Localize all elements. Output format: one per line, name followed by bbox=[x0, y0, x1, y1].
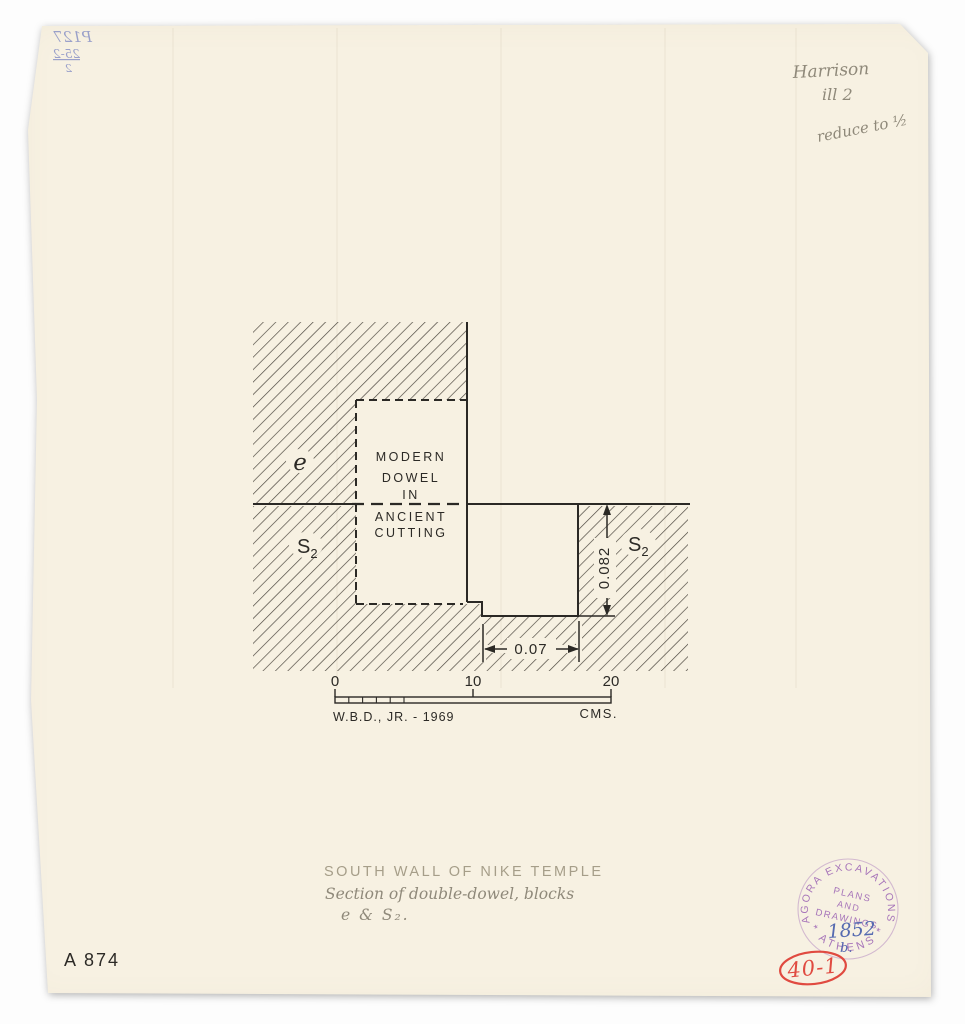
caption-line1: SOUTH WALL OF NIKE TEMPLE bbox=[324, 864, 604, 880]
pencil-caption: SOUTH WALL OF NIKE TEMPLE Section of dou… bbox=[324, 864, 604, 924]
scale-credit: W.B.D., JR. - 1969 bbox=[333, 710, 455, 724]
dowel-label-line5: CUTTING bbox=[374, 526, 447, 540]
pencil-notes-top-right: Harrison ill 2 reduce to ½ bbox=[791, 59, 909, 146]
caption-line2: Section of double-dowel, blocks bbox=[325, 885, 574, 903]
s2-main: S bbox=[628, 534, 641, 556]
scale-bar: 0 10 20 W.B.D., JR. - 1969 CMS. bbox=[331, 673, 620, 724]
plate-number: 40-1 bbox=[785, 953, 839, 982]
dowel-label-line3: IN bbox=[402, 488, 420, 502]
scale-tick-10: 10 bbox=[465, 673, 482, 690]
bleed-line1: P127 bbox=[53, 28, 93, 46]
s2-subscript: 2 bbox=[641, 544, 648, 559]
note-ill: ill 2 bbox=[822, 85, 853, 104]
bleed-line3: 2 bbox=[65, 62, 73, 75]
block-label-e: e bbox=[293, 450, 307, 476]
catalog-number: A 874 bbox=[64, 950, 120, 970]
bleed-line2: 25-2 bbox=[53, 47, 81, 61]
s2-main: S bbox=[297, 536, 310, 558]
hatch-block-s2 bbox=[253, 506, 688, 671]
scale-tick-0: 0 bbox=[331, 673, 339, 690]
dim-value-vertical: 0.082 bbox=[596, 547, 613, 590]
scale-unit: CMS. bbox=[580, 706, 619, 721]
plate-number-group: 40-1 bbox=[779, 949, 848, 988]
caption-line3: e & S₂. bbox=[341, 906, 410, 924]
dowel-label-line4: ANCIENT bbox=[375, 510, 447, 524]
dim-value-horizontal: 0.07 bbox=[514, 641, 547, 658]
dowel-label-line2: DOWEL bbox=[382, 471, 440, 485]
cutting-step-outline bbox=[467, 504, 578, 616]
note-harrison: Harrison bbox=[791, 59, 870, 83]
s2-subscript: 2 bbox=[310, 546, 317, 561]
stamp-number: 1852 bbox=[827, 918, 877, 943]
note-reduce: reduce to ½ bbox=[815, 111, 908, 146]
dowel-label-line1: MODERN bbox=[376, 450, 447, 464]
agora-stamp: AGORA EXCAVATIONS * ATHENS * PLANS AND D… bbox=[798, 859, 898, 959]
scale-tick-20: 20 bbox=[603, 673, 620, 690]
scanned-drawing-sheet: MODERN DOWEL IN ANCIENT CUTTING e S2 S2 … bbox=[0, 0, 965, 1024]
section-drawing: MODERN DOWEL IN ANCIENT CUTTING e S2 S2 … bbox=[0, 0, 965, 1024]
stamp-suffix: b. bbox=[840, 941, 852, 956]
bleedthrough-note: P127 25-2 2 bbox=[53, 28, 93, 75]
